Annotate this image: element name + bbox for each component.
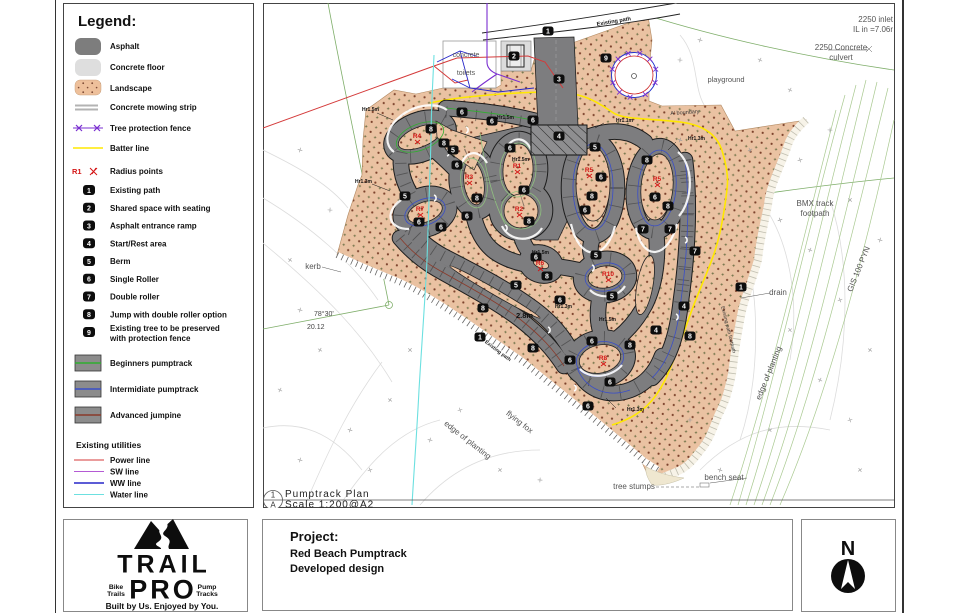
svg-text:8: 8 bbox=[666, 204, 670, 211]
svg-text:6: 6 bbox=[583, 208, 587, 215]
svg-text:Hr1.5m: Hr1.5m bbox=[599, 317, 617, 323]
svg-text:BMX track: BMX track bbox=[797, 199, 835, 208]
svg-text:Scale 1:200@A2: Scale 1:200@A2 bbox=[285, 500, 374, 509]
svg-text:6: 6 bbox=[455, 163, 459, 170]
svg-text:Hr1.3m: Hr1.3m bbox=[688, 136, 706, 142]
svg-text:Concrete floor: Concrete floor bbox=[110, 63, 165, 72]
svg-text:9: 9 bbox=[87, 330, 91, 337]
svg-text:6: 6 bbox=[558, 298, 562, 305]
svg-text:4: 4 bbox=[557, 134, 561, 141]
svg-text:culvert: culvert bbox=[829, 53, 853, 62]
svg-text:8: 8 bbox=[429, 127, 433, 134]
svg-text:4: 4 bbox=[654, 328, 658, 335]
svg-text:Start/Rest area: Start/Rest area bbox=[110, 239, 167, 248]
svg-text:2250 inlet: 2250 inlet bbox=[858, 15, 893, 24]
svg-text:Legend:: Legend: bbox=[78, 13, 136, 30]
svg-text:IL in =7.06r: IL in =7.06r bbox=[853, 25, 893, 34]
svg-text:1: 1 bbox=[739, 285, 743, 292]
svg-text:1: 1 bbox=[87, 188, 91, 195]
svg-text:6: 6 bbox=[590, 339, 594, 346]
svg-text:R5: R5 bbox=[653, 176, 662, 183]
svg-text:6: 6 bbox=[653, 195, 657, 202]
svg-text:6: 6 bbox=[599, 175, 603, 182]
svg-text:concrete: concrete bbox=[453, 52, 480, 59]
svg-text:6: 6 bbox=[508, 146, 512, 153]
svg-text:2: 2 bbox=[87, 206, 91, 213]
svg-text:WW line: WW line bbox=[110, 479, 142, 488]
svg-text:5: 5 bbox=[593, 145, 597, 152]
svg-text:R1: R1 bbox=[72, 167, 82, 176]
svg-text:Batter line: Batter line bbox=[110, 144, 150, 153]
svg-text:Hr1.3m: Hr1.3m bbox=[355, 179, 373, 185]
svg-text:8: 8 bbox=[628, 343, 632, 350]
svg-text:78°30': 78°30' bbox=[314, 310, 334, 318]
svg-text:tree stumps: tree stumps bbox=[613, 482, 655, 491]
svg-text:Advanced jumpine: Advanced jumpine bbox=[110, 411, 182, 420]
svg-text:5: 5 bbox=[610, 294, 614, 301]
svg-text:3: 3 bbox=[557, 77, 561, 84]
svg-text:4: 4 bbox=[87, 241, 91, 248]
svg-text:Landscape: Landscape bbox=[110, 84, 152, 93]
svg-text:6: 6 bbox=[417, 220, 421, 227]
svg-text:Hr1.5m: Hr1.5m bbox=[362, 107, 380, 113]
svg-text:N: N bbox=[841, 538, 855, 560]
svg-text:6: 6 bbox=[608, 380, 612, 387]
svg-text:Asphalt entrance ramp: Asphalt entrance ramp bbox=[110, 222, 197, 231]
svg-text:7: 7 bbox=[87, 294, 91, 301]
svg-text:SW line: SW line bbox=[110, 468, 139, 477]
svg-text:playground: playground bbox=[707, 75, 744, 84]
svg-text:Existing tree to be preserved: Existing tree to be preserved bbox=[110, 324, 220, 333]
svg-text:Bike: Bike bbox=[109, 584, 124, 591]
svg-text:8: 8 bbox=[590, 194, 594, 201]
svg-text:5: 5 bbox=[514, 283, 518, 290]
svg-text:Power line: Power line bbox=[110, 456, 151, 465]
svg-text:Intermidiate pumptrack: Intermidiate pumptrack bbox=[110, 385, 199, 394]
svg-text:Hr1.3m: Hr1.3m bbox=[555, 304, 573, 310]
svg-text:bench seat: bench seat bbox=[704, 473, 744, 482]
svg-text:Hr1.1m: Hr1.1m bbox=[616, 118, 634, 124]
svg-text:8: 8 bbox=[688, 334, 692, 341]
svg-text:8: 8 bbox=[481, 306, 485, 313]
svg-text:Jump with double roller option: Jump with double roller option bbox=[110, 310, 227, 319]
svg-text:Berm: Berm bbox=[110, 257, 130, 266]
svg-text:R5: R5 bbox=[585, 167, 594, 174]
svg-text:1: 1 bbox=[546, 29, 550, 36]
svg-text:kerb: kerb bbox=[305, 262, 321, 271]
svg-text:8: 8 bbox=[527, 219, 531, 226]
svg-text:6: 6 bbox=[531, 118, 535, 125]
svg-text:footpath: footpath bbox=[801, 209, 830, 218]
svg-text:4: 4 bbox=[682, 304, 686, 311]
svg-text:8: 8 bbox=[442, 141, 446, 148]
svg-text:Existing utilities: Existing utilities bbox=[76, 440, 141, 450]
svg-text:6: 6 bbox=[460, 110, 464, 117]
svg-text:R4: R4 bbox=[413, 133, 422, 140]
svg-text:Trails: Trails bbox=[107, 591, 125, 598]
svg-text:Hr1.3m: Hr1.3m bbox=[627, 407, 645, 413]
svg-text:2250 Concrete: 2250 Concrete bbox=[815, 43, 868, 52]
svg-text:20.12: 20.12 bbox=[307, 324, 325, 331]
svg-text:R6: R6 bbox=[536, 260, 545, 267]
svg-text:drain: drain bbox=[769, 288, 787, 297]
svg-text:R8: R8 bbox=[599, 355, 608, 362]
svg-text:R3: R3 bbox=[465, 174, 474, 181]
svg-text:6: 6 bbox=[439, 225, 443, 232]
svg-text:5: 5 bbox=[451, 148, 455, 155]
svg-text:R10: R10 bbox=[602, 271, 614, 278]
svg-text:Shared space with seating: Shared space with seating bbox=[110, 204, 211, 213]
svg-text:7: 7 bbox=[641, 227, 645, 234]
svg-text:Single Roller: Single Roller bbox=[110, 275, 159, 284]
svg-text:A: A bbox=[270, 501, 276, 509]
svg-text:toilets: toilets bbox=[457, 70, 476, 77]
svg-text:1: 1 bbox=[271, 491, 276, 500]
svg-text:Tracks: Tracks bbox=[196, 591, 218, 598]
svg-text:PRO: PRO bbox=[129, 575, 197, 605]
svg-text:8: 8 bbox=[545, 274, 549, 281]
svg-text:7: 7 bbox=[668, 227, 672, 234]
svg-text:9: 9 bbox=[604, 56, 608, 63]
svg-text:6: 6 bbox=[490, 119, 494, 126]
svg-text:Pump: Pump bbox=[198, 584, 217, 591]
svg-text:8: 8 bbox=[87, 312, 91, 319]
svg-text:6: 6 bbox=[568, 358, 572, 365]
svg-text:Hr1.5m: Hr1.5m bbox=[497, 115, 515, 121]
svg-text:2: 2 bbox=[512, 54, 516, 61]
svg-text:R7: R7 bbox=[416, 206, 425, 213]
svg-text:R2: R2 bbox=[515, 206, 524, 213]
svg-text:8: 8 bbox=[475, 196, 479, 203]
svg-text:Beginners pumptrack: Beginners pumptrack bbox=[110, 359, 193, 368]
svg-text:3: 3 bbox=[87, 223, 91, 230]
svg-text:8: 8 bbox=[645, 158, 649, 165]
svg-text:Concrete mowing strip: Concrete mowing strip bbox=[110, 103, 197, 112]
svg-text:Built by Us. Enjoyed by You.: Built by Us. Enjoyed by You. bbox=[106, 601, 219, 611]
svg-text:Tree protection fence: Tree protection fence bbox=[110, 124, 191, 133]
svg-text:1: 1 bbox=[478, 335, 482, 342]
svg-text:6: 6 bbox=[87, 277, 91, 284]
svg-text:Existing path: Existing path bbox=[110, 186, 160, 195]
svg-text:with protection fence: with protection fence bbox=[109, 334, 191, 343]
svg-text:8: 8 bbox=[531, 346, 535, 353]
svg-text:5: 5 bbox=[594, 253, 598, 260]
svg-text:6: 6 bbox=[465, 214, 469, 221]
svg-text:Water line: Water line bbox=[110, 491, 148, 500]
svg-text:5: 5 bbox=[87, 259, 91, 266]
svg-text:R1: R1 bbox=[513, 163, 522, 170]
svg-text:5: 5 bbox=[403, 194, 407, 201]
svg-text:6: 6 bbox=[522, 188, 526, 195]
svg-text:Asphalt: Asphalt bbox=[110, 42, 140, 51]
svg-text:Pumptrack Plan: Pumptrack Plan bbox=[285, 489, 370, 500]
svg-text:2.8m: 2.8m bbox=[516, 311, 533, 320]
svg-text:7: 7 bbox=[693, 249, 697, 256]
svg-text:Radius points: Radius points bbox=[110, 167, 163, 176]
svg-text:Double roller: Double roller bbox=[110, 293, 159, 302]
svg-text:6: 6 bbox=[586, 404, 590, 411]
